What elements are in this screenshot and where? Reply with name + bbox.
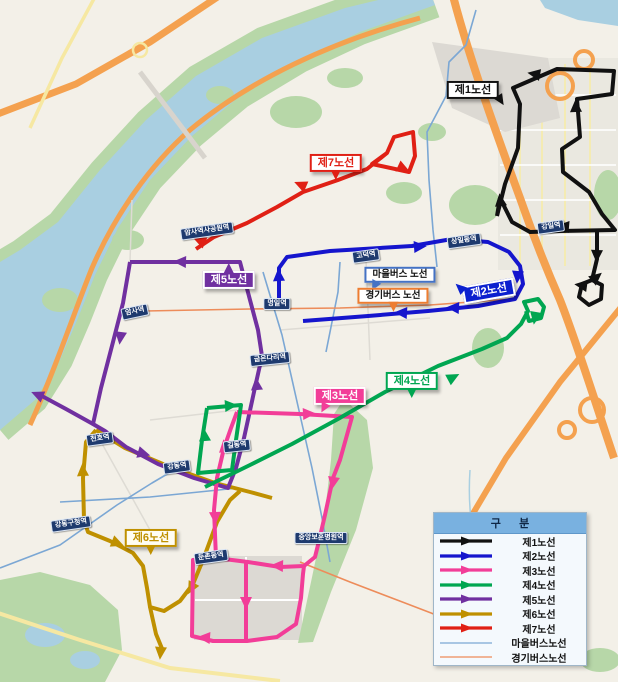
legend-item-label: 제4노선	[496, 577, 582, 592]
legend-line-sample	[438, 593, 496, 605]
legend-item-label: 제3노선	[496, 563, 582, 578]
legend-item-label: 제2노선	[496, 548, 582, 563]
legend-row: 마을버스노선	[434, 636, 586, 651]
legend-item-label: 경기버스노선	[496, 650, 582, 665]
legend-item-label: 제7노선	[496, 621, 582, 636]
legend-header: 구 분	[434, 513, 586, 534]
legend-row: 제3노선	[434, 563, 586, 578]
legend-body: 제1노선제2노선제3노선제4노선제5노선제6노선제7노선마을버스노선경기버스노선	[434, 534, 586, 665]
legend-item-label: 제5노선	[496, 592, 582, 607]
legend: 구 분 제1노선제2노선제3노선제4노선제5노선제6노선제7노선마을버스노선경기…	[433, 512, 587, 666]
legend-line-sample	[438, 637, 496, 649]
legend-row: 제4노선	[434, 578, 586, 593]
legend-row: 제5노선	[434, 592, 586, 607]
legend-line-sample	[438, 651, 496, 663]
legend-row: 경기버스노선	[434, 650, 586, 665]
legend-line-sample	[438, 550, 496, 562]
legend-row: 제2노선	[434, 549, 586, 564]
legend-row: 제1노선	[434, 534, 586, 549]
legend-line-sample	[438, 564, 496, 576]
legend-item-label: 제1노선	[496, 534, 582, 549]
legend-line-sample	[438, 579, 496, 591]
legend-row: 제6노선	[434, 607, 586, 622]
bus-route-map: 암사역사공원역고덕역상일동역강일역명일역암사역굽은다리역천호역길동역강동역강동구…	[0, 0, 618, 682]
legend-line-sample	[438, 608, 496, 620]
legend-line-sample	[438, 535, 496, 547]
legend-row: 제7노선	[434, 621, 586, 636]
legend-item-label: 마을버스노선	[496, 635, 582, 650]
legend-line-sample	[438, 622, 496, 634]
legend-item-label: 제6노선	[496, 606, 582, 621]
